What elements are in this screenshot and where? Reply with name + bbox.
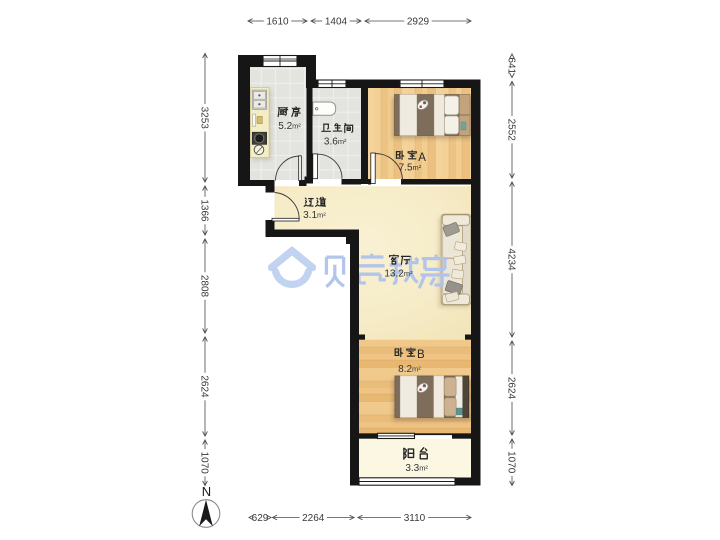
svg-text:641: 641 — [506, 57, 517, 74]
svg-text:2624: 2624 — [506, 377, 517, 400]
svg-text:N: N — [202, 484, 211, 499]
svg-text:3110: 3110 — [404, 513, 426, 524]
svg-text:3.6m²: 3.6m² — [324, 136, 347, 147]
svg-text:2624: 2624 — [199, 375, 210, 398]
svg-text:1404: 1404 — [325, 17, 348, 28]
svg-text:3.3m²: 3.3m² — [405, 463, 428, 474]
svg-text:2929: 2929 — [407, 17, 430, 28]
svg-text:7.5m²: 7.5m² — [399, 163, 422, 174]
svg-text:A: A — [418, 152, 426, 164]
svg-text:2808: 2808 — [199, 275, 210, 298]
svg-text:629: 629 — [252, 513, 269, 524]
svg-text:1070: 1070 — [199, 452, 210, 475]
svg-text:1610: 1610 — [266, 17, 289, 28]
svg-text:8.2m²: 8.2m² — [398, 364, 421, 375]
svg-text:B: B — [417, 349, 425, 361]
svg-text:3253: 3253 — [199, 107, 210, 130]
svg-text:4234: 4234 — [506, 248, 517, 271]
svg-text:5.2m²: 5.2m² — [278, 121, 301, 132]
svg-text:2264: 2264 — [302, 513, 325, 524]
svg-text:2552: 2552 — [506, 119, 517, 142]
svg-text:1366: 1366 — [199, 199, 210, 222]
svg-text:13.2m²: 13.2m² — [384, 268, 413, 279]
svg-text:1070: 1070 — [506, 451, 517, 474]
svg-text:3.1m²: 3.1m² — [303, 210, 326, 221]
